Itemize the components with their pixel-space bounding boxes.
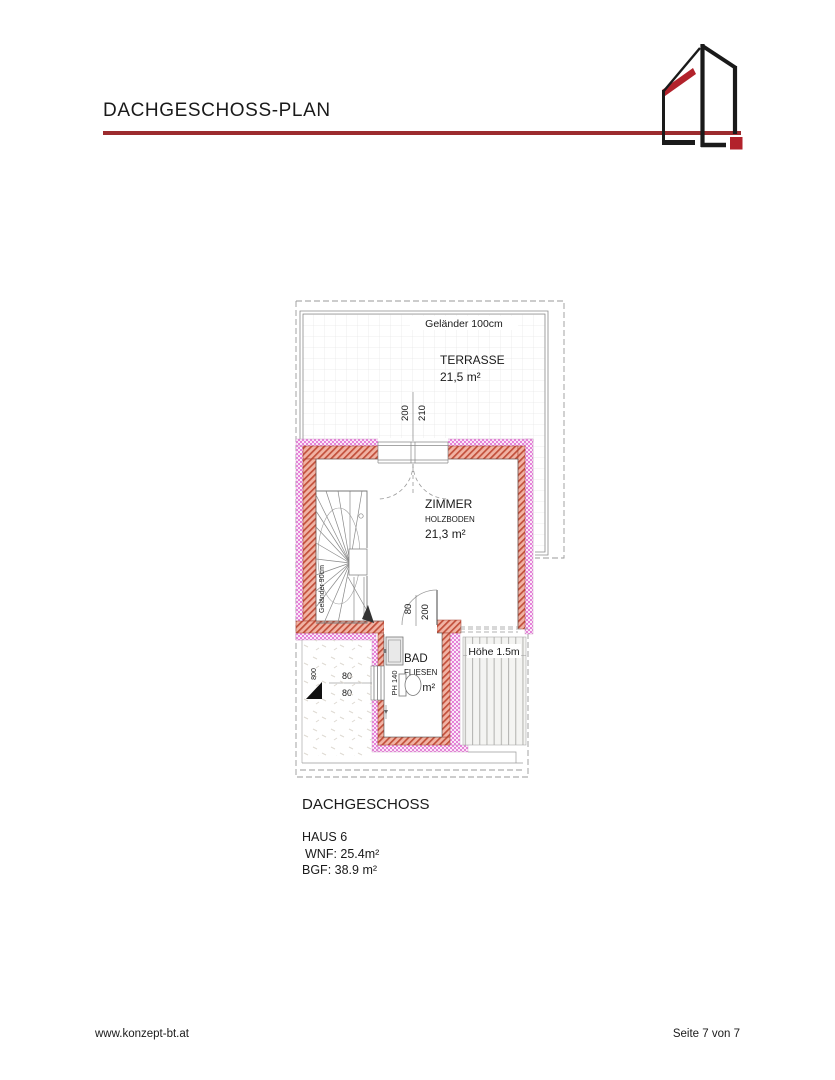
stair-post-mark (359, 514, 363, 518)
zimmer-room: ZIMMER HOLZBODEN 21,3 m² (316, 459, 518, 632)
sink (384, 637, 404, 665)
wall-inner-edges (316, 459, 518, 629)
bad-door-dim-width: 80 (403, 604, 414, 615)
bgf-value: BGF: 38.9 m² (302, 862, 430, 879)
terrace-grid (303, 314, 545, 442)
footer-page-number: Seite 7 von 7 (673, 1028, 740, 1040)
terrasse-area-label: 21,5 m² (440, 370, 481, 384)
open-boundary-dashed (460, 627, 518, 632)
staircase: Geländer 90cm (316, 491, 374, 623)
terrace-railing-label: Geländer 100cm (425, 318, 503, 330)
terrasse-name-label: TERRASSE (440, 353, 505, 367)
parapet-height-label: PH 140 (390, 670, 399, 695)
logo-left-shape (662, 48, 700, 144)
low-height-label: Höhe 1.5m (468, 646, 520, 658)
plan-caption: DACHGESCHOSS (302, 796, 430, 813)
door-dim-width: 200 (400, 405, 411, 421)
house-label: HAUS 6 (302, 829, 430, 846)
bad-door: 80 200 (384, 590, 437, 634)
roof-dim-label: 800 (311, 668, 318, 680)
zimmer-name-label: ZIMMER (425, 497, 473, 511)
terrace-door (378, 438, 448, 499)
terrace-area: Geländer 100cm TERRASSE 21,5 m² (300, 311, 548, 555)
zimmer-area-label: 21,3 m² (425, 527, 466, 541)
logo-right-shape (701, 44, 736, 147)
company-logo-icon (650, 40, 756, 162)
bad-window (371, 666, 384, 700)
bad-name-label: BAD (404, 653, 428, 665)
bad-room: BAD FLIESEN 4,1 m² PH 140 (384, 633, 443, 737)
stair-railing-label: Geländer 90cm (319, 565, 326, 613)
floor-plan-svg: Geländer 100cm TERRASSE 21,5 m² (292, 293, 568, 783)
door-swing-arcs (378, 464, 448, 499)
caption-block: DACHGESCHOSS HAUS 6 WNF: 25.4m² BGF: 38.… (302, 796, 430, 879)
zimmer-floor-label: HOLZBODEN (425, 515, 475, 524)
toilet (399, 674, 421, 696)
logo-red-dot (730, 137, 743, 150)
low-height-area: Höhe 1.5m (460, 629, 528, 745)
door-dim-height: 210 (417, 405, 428, 421)
roof-area: 800 (302, 640, 372, 763)
floor-plan: Geländer 100cm TERRASSE 21,5 m² (292, 293, 568, 788)
bad-door-dim-height: 200 (420, 604, 431, 620)
title-underline (103, 131, 741, 135)
wnf-value: WNF: 25.4m² (302, 846, 430, 863)
stair-landing-notch (349, 549, 367, 575)
plan-document-page: DACHGESCHOSS-PLAN (0, 0, 835, 1080)
page-title: DACHGESCHOSS-PLAN (103, 100, 331, 122)
footer-website: www.konzept-bt.at (95, 1028, 189, 1040)
